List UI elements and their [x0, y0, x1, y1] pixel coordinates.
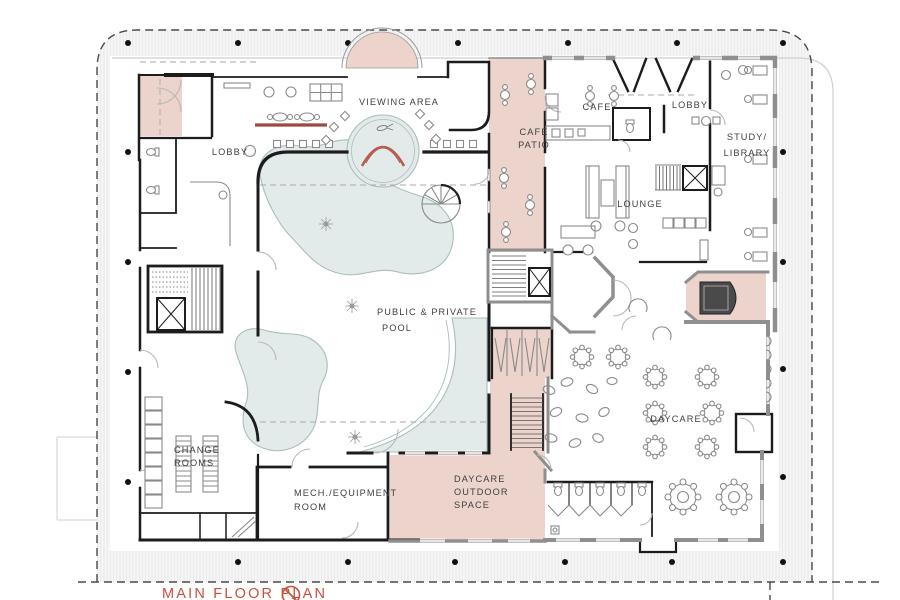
room-label-cafe: CAFE: [583, 102, 612, 112]
title-block: MAIN FLOOR PLAN: [162, 586, 327, 600]
toilet-icon: [147, 186, 160, 194]
svg-text:SPACE: SPACE: [454, 500, 490, 510]
room-label-lounge: LOUNGE: [617, 199, 662, 209]
plant-icon: [319, 217, 333, 231]
plant-icon: [345, 299, 359, 313]
toilet-icon: [147, 148, 160, 156]
svg-text:POOL: POOL: [382, 323, 412, 333]
svg-text:ROOM: ROOM: [294, 502, 327, 512]
room-label-daycare: DAYCARE: [650, 414, 701, 424]
room-label-study-library: STUDY/: [727, 132, 767, 142]
svg-text:LIBRARY: LIBRARY: [724, 148, 771, 158]
room-label-viewing-area: VIEWING AREA: [359, 97, 439, 107]
daycare-outdoor-zone: [390, 455, 545, 541]
plan-title: MAIN FLOOR PLAN: [162, 586, 327, 600]
alcove-piano: [700, 282, 736, 314]
floor-plan-sheet: LOBBY VIEWING AREA CAFE PATIO CAFE LOBBY…: [0, 0, 900, 600]
room-label-daycare-outdoor: DAYCARE: [454, 474, 505, 484]
room-label-mech-room: MECH./EQUIPMENT: [294, 488, 397, 498]
floor-plan-drawing: LOBBY VIEWING AREA CAFE PATIO CAFE LOBBY…: [0, 0, 900, 600]
driveway-lines: [57, 437, 97, 520]
room-label-cafe-patio: CAFE: [520, 127, 549, 137]
room-label-lobby-right: LOBBY: [672, 100, 708, 110]
room-label-lobby-left: LOBBY: [212, 147, 248, 157]
svg-text:PATIO: PATIO: [518, 140, 550, 150]
cafe-patio-zone: [489, 58, 545, 252]
entry-vestibule-zone: [140, 76, 182, 136]
room-label-change-rooms: CHANGE: [174, 445, 220, 455]
toilet-icon: [626, 120, 634, 133]
svg-text:ROOMS: ROOMS: [174, 458, 214, 468]
room-label-pool: PUBLIC & PRIVATE: [377, 307, 477, 317]
svg-text:OUTDOOR: OUTDOOR: [454, 487, 509, 497]
lobby-right-furniture: [692, 117, 720, 126]
stair-landing-zone: [490, 378, 545, 455]
plant-icon: [348, 430, 362, 444]
